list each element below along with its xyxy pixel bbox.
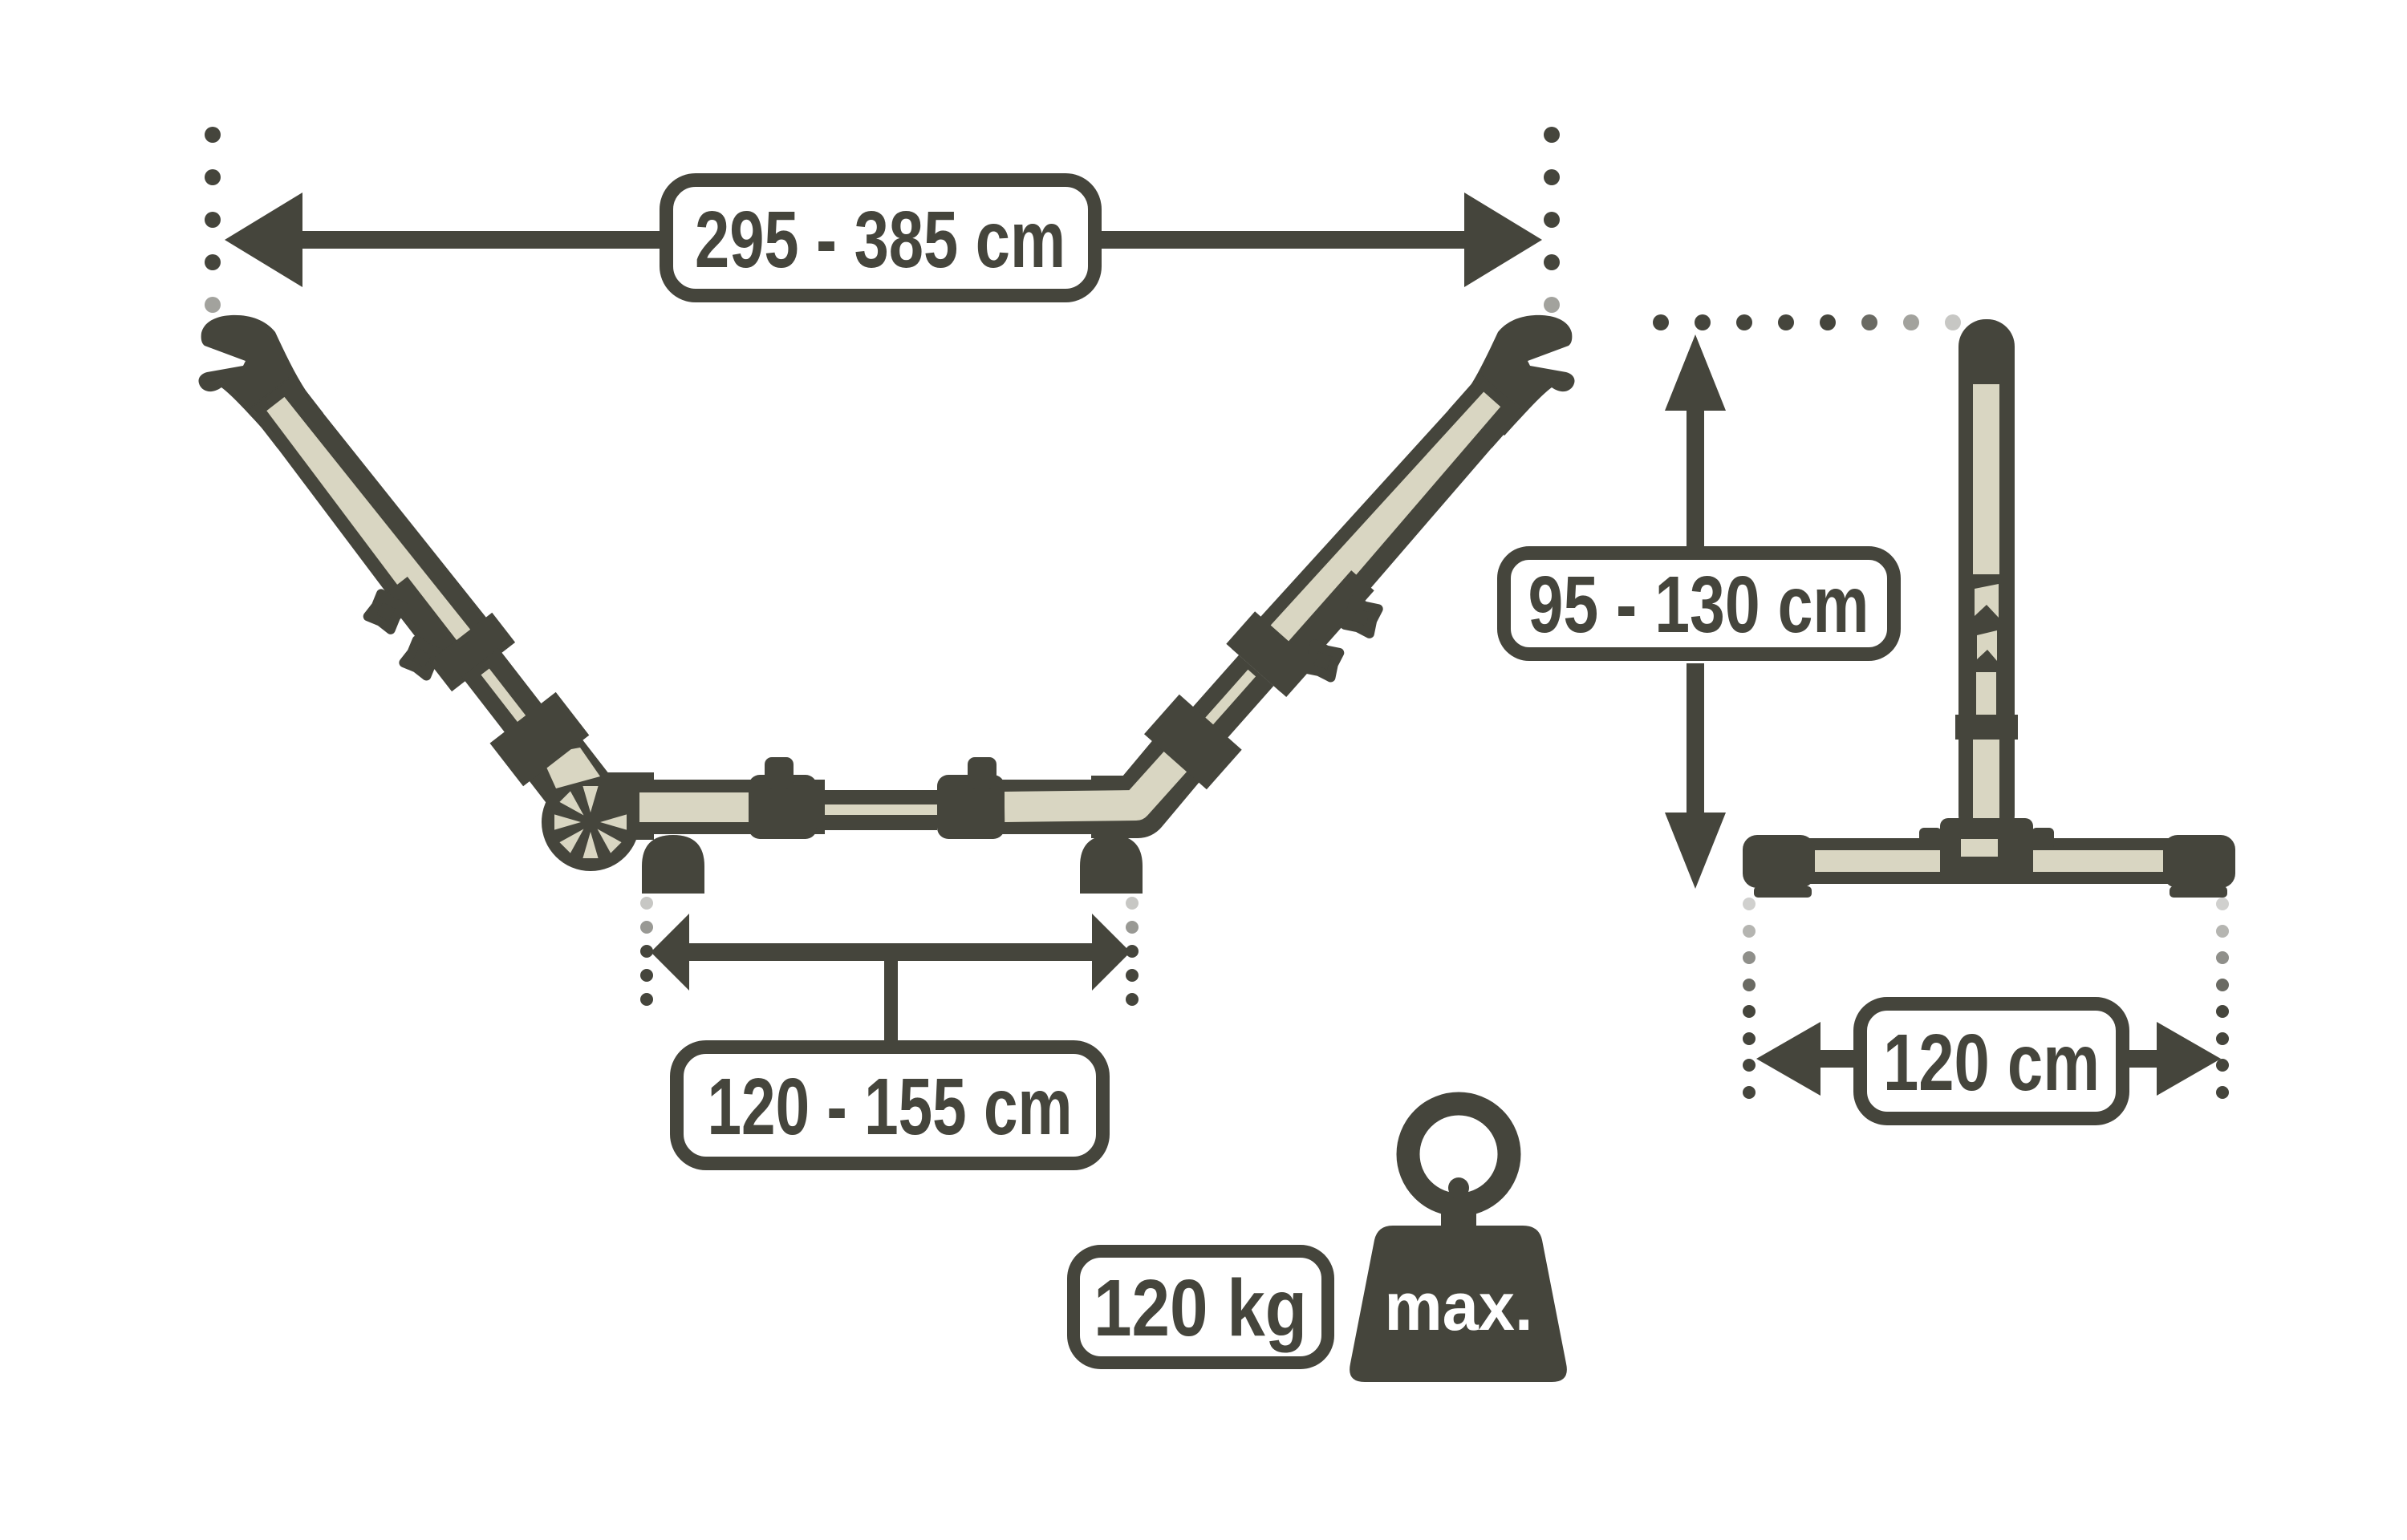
- svg-text:max.: max.: [1385, 1269, 1533, 1344]
- svg-text:120 - 155 cm: 120 - 155 cm: [708, 1062, 1073, 1152]
- svg-text:120 cm: 120 cm: [1883, 1018, 2100, 1108]
- svg-text:295 - 385 cm: 295 - 385 cm: [695, 195, 1065, 285]
- svg-text:120 kg: 120 kg: [1094, 1263, 1307, 1353]
- svg-text:95 - 130 cm: 95 - 130 cm: [1528, 560, 1869, 650]
